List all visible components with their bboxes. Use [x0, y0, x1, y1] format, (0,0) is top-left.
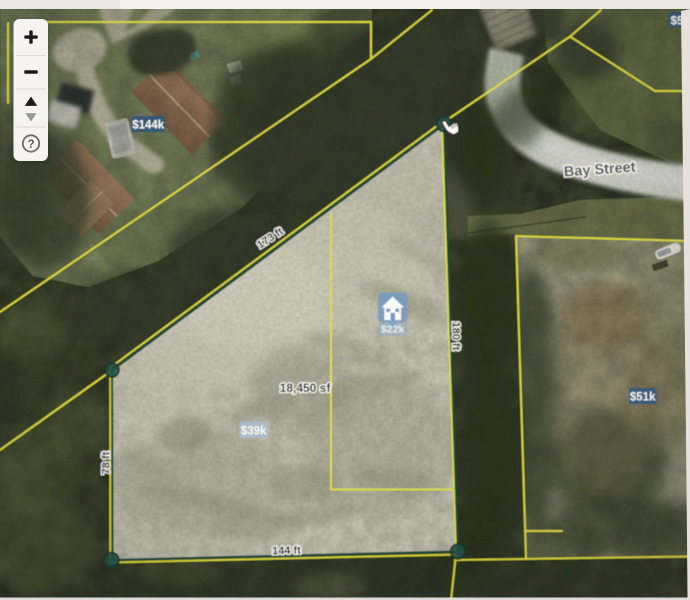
svg-text:?: ?: [27, 139, 34, 151]
